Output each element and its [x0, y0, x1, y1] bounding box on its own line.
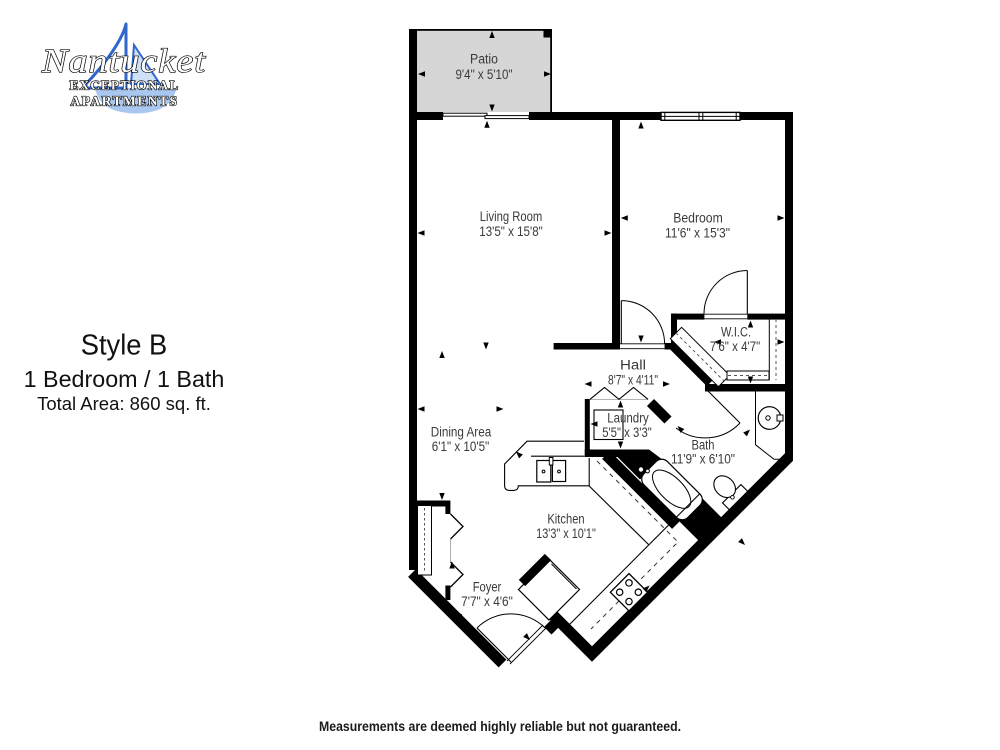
svg-text:Measurements are deemed highly: Measurements are deemed highly reliable … [319, 719, 681, 734]
svg-text:Kitchen: Kitchen [547, 512, 584, 527]
svg-text:Foyer: Foyer [473, 580, 502, 595]
svg-text:8'7" x 4'11": 8'7" x 4'11" [608, 373, 658, 388]
svg-text:Living Room: Living Room [480, 209, 543, 224]
svg-text:1 Bedroom / 1 Bath: 1 Bedroom / 1 Bath [24, 366, 225, 392]
svg-text:7'6" x 4'7": 7'6" x 4'7" [710, 339, 761, 354]
svg-text:6'1" x 10'5": 6'1" x 10'5" [432, 439, 490, 454]
svg-text:W.I.C.: W.I.C. [721, 325, 751, 340]
svg-text:13'3" x 10'1": 13'3" x 10'1" [536, 526, 596, 541]
svg-text:Dining Area: Dining Area [431, 425, 492, 440]
svg-text:Laundry: Laundry [607, 411, 649, 426]
svg-text:Bath: Bath [692, 438, 715, 453]
svg-text:EXCEPTIONAL: EXCEPTIONAL [70, 78, 180, 93]
svg-text:11'6" x 15'3": 11'6" x 15'3" [665, 226, 730, 241]
svg-text:Patio: Patio [470, 52, 498, 67]
svg-text:7'7" x 4'6": 7'7" x 4'6" [461, 594, 513, 609]
svg-text:9'4" x 5'10": 9'4" x 5'10" [456, 67, 513, 82]
svg-text:13'5" x 15'8": 13'5" x 15'8" [479, 224, 543, 239]
svg-text:5'5" x 3'3": 5'5" x 3'3" [602, 425, 652, 440]
svg-text:11'9" x 6'10": 11'9" x 6'10" [671, 452, 735, 467]
svg-text:Nantucket: Nantucket [41, 43, 207, 80]
svg-text:Bedroom: Bedroom [673, 211, 723, 226]
svg-text:Hall: Hall [620, 358, 646, 373]
svg-text:Style B: Style B [81, 330, 168, 362]
svg-text:Total Area: 860 sq. ft.: Total Area: 860 sq. ft. [37, 393, 211, 414]
svg-text:APARTMENTS: APARTMENTS [70, 94, 178, 109]
